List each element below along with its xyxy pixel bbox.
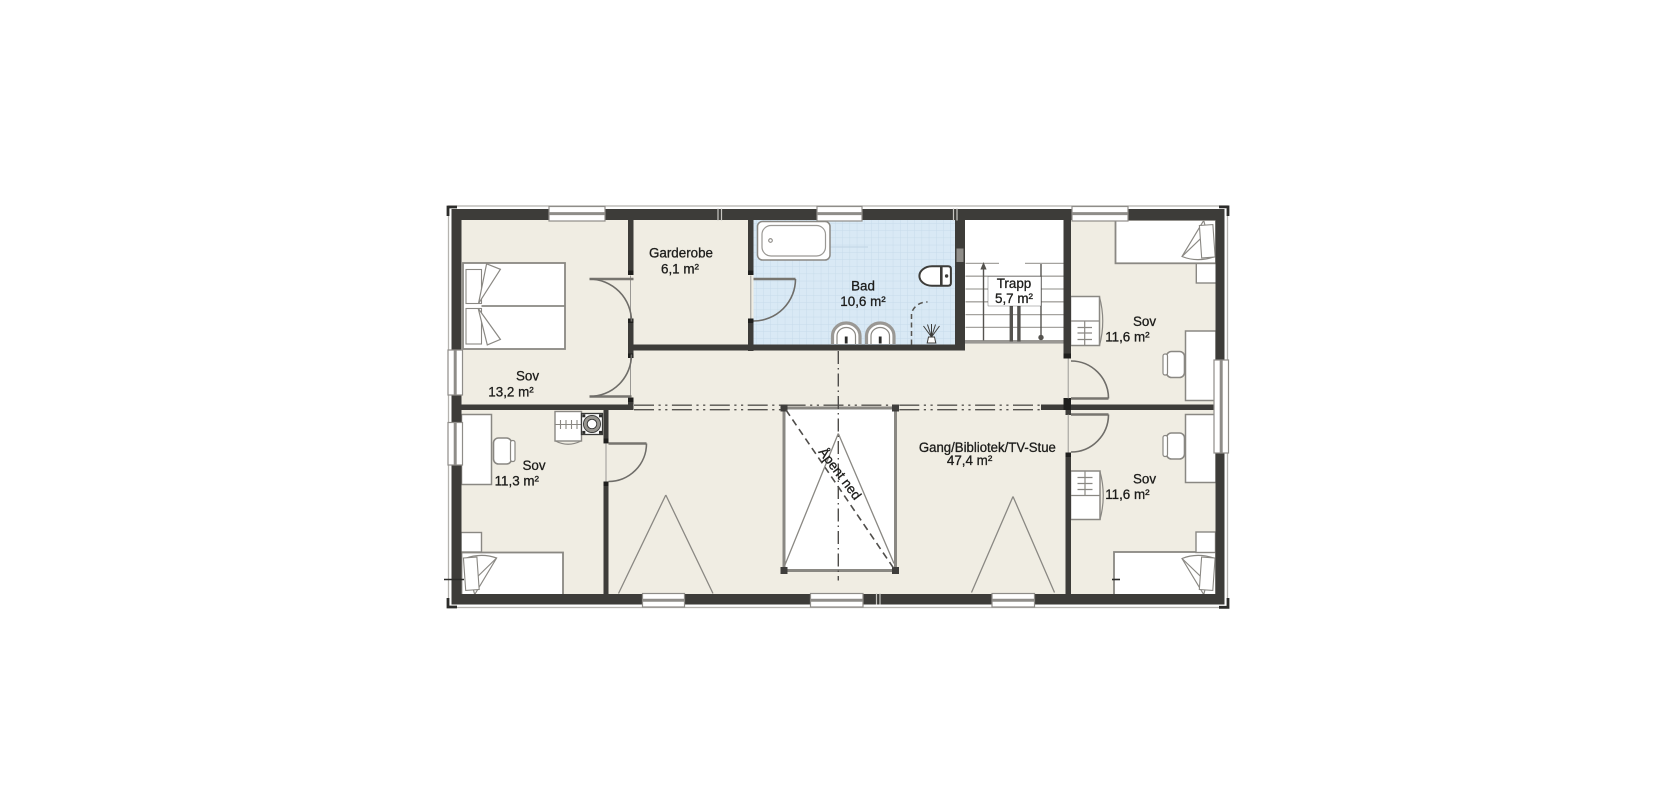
svg-text:11,6 m²: 11,6 m² (1105, 330, 1150, 345)
svg-text:10,6 m²: 10,6 m² (840, 294, 886, 309)
svg-text:11,6 m²: 11,6 m² (1105, 487, 1150, 502)
svg-text:Sov: Sov (1133, 314, 1156, 329)
svg-text:Sov: Sov (522, 458, 545, 473)
svg-text:5,7 m²: 5,7 m² (995, 291, 1033, 306)
svg-text:Trapp: Trapp (997, 276, 1031, 291)
svg-text:Bad: Bad (851, 279, 875, 294)
svg-text:Sov: Sov (1133, 472, 1156, 487)
svg-text:47,4 m²: 47,4 m² (947, 453, 993, 468)
svg-text:13,2 m²: 13,2 m² (488, 384, 534, 399)
svg-text:6,1 m²: 6,1 m² (661, 262, 699, 277)
svg-text:11,3 m²: 11,3 m² (495, 474, 540, 489)
svg-text:Garderobe: Garderobe (649, 246, 713, 261)
svg-text:Sov: Sov (516, 368, 539, 383)
